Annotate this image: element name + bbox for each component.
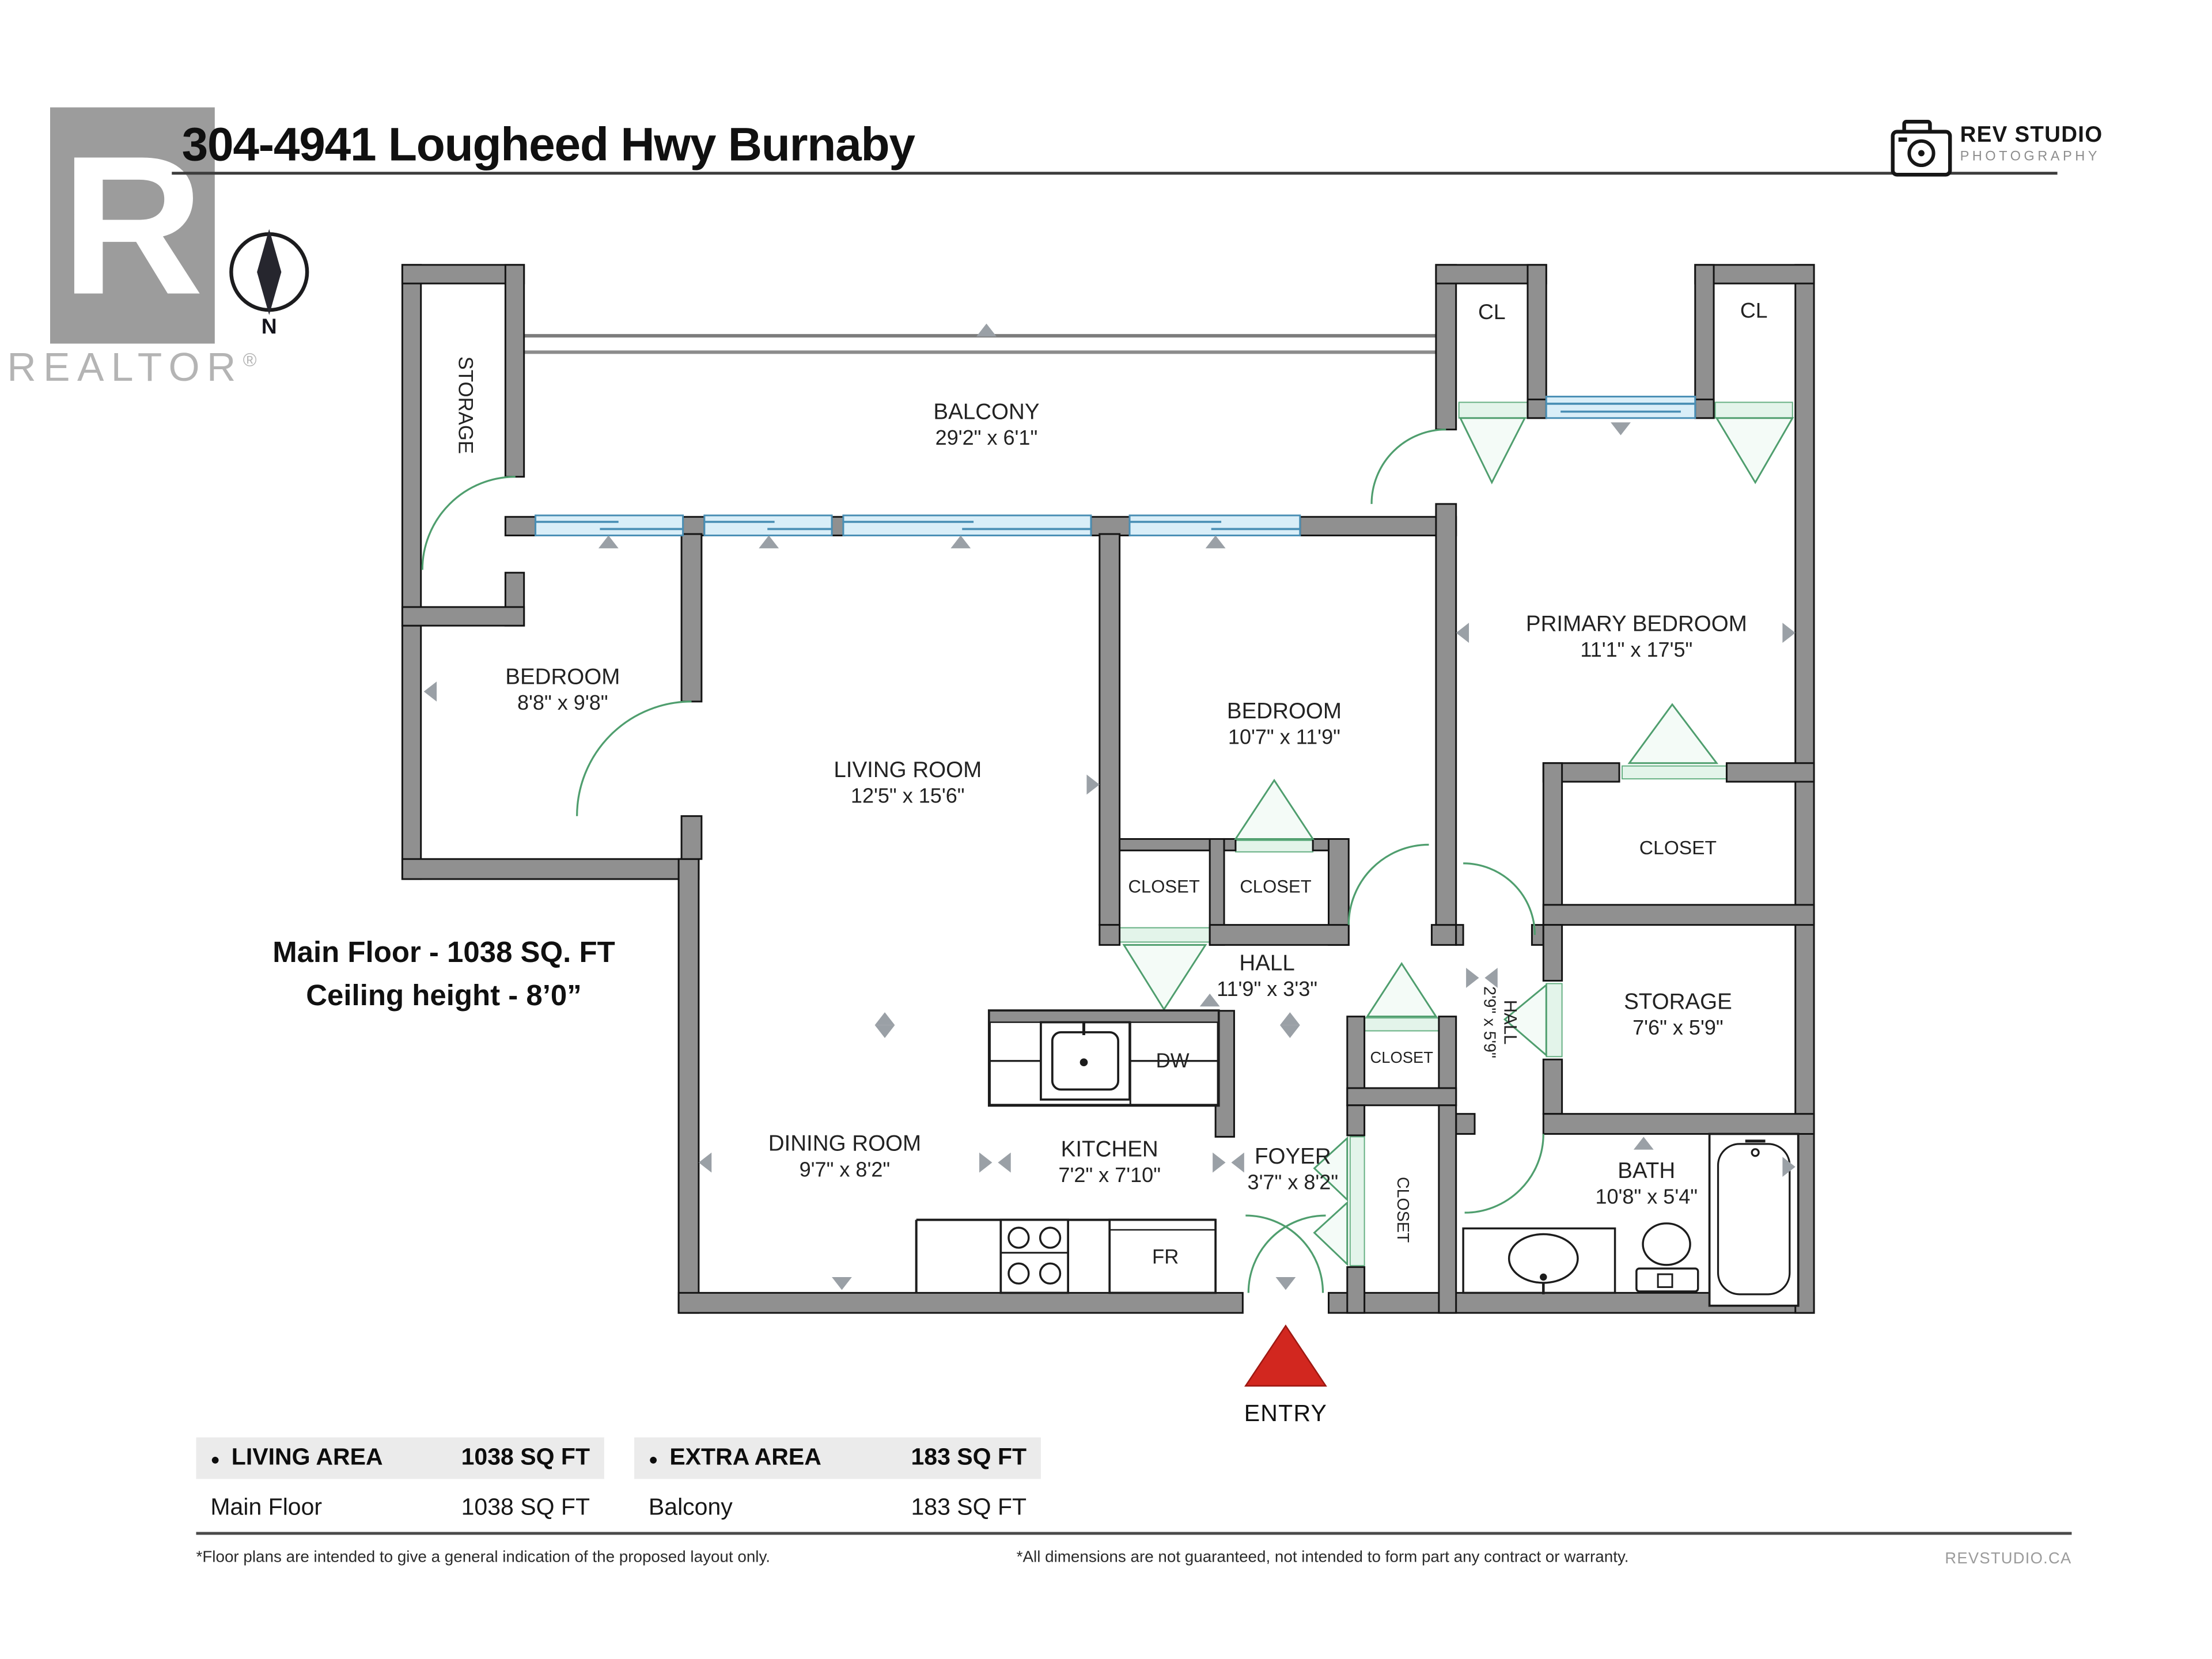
revstudio-watermark: REVSTUDIO.CA [1904, 1551, 2072, 1568]
bath-vanity [1463, 1229, 1615, 1294]
disclaimer-right: *All dimensions are not guaranteed, not … [1017, 1549, 1629, 1566]
main-floor-row: Main Floor 1038 SQ FT [196, 1489, 604, 1527]
living-area-total: 1038 SQ FT [461, 1445, 590, 1472]
floor-area-note: Main Floor - 1038 SQ. FT Ceiling height … [215, 932, 673, 1018]
floorplan-document: R REALTOR® 304-4941 Lougheed Hwy Burnaby… [0, 0, 2212, 1659]
room-label-closet-foyer-side: CLOSET [1392, 1177, 1412, 1243]
bullet-icon: ● [649, 1452, 658, 1469]
floorplan-page: R REALTOR® 304-4941 Lougheed Hwy Burnaby… [0, 0, 2212, 1659]
footer-divider [196, 1532, 2072, 1535]
balcony-label: Balcony [649, 1494, 733, 1521]
extra-area-title: EXTRA AREA [669, 1445, 821, 1471]
main-floor-value: 1038 SQ FT [461, 1494, 590, 1521]
balcony-row: Balcony 183 SQ FT [634, 1489, 1041, 1527]
floorplan-drawing [0, 0, 2212, 1659]
room-label-bath: BATH10'8" x 5'4" [1595, 1159, 1698, 1211]
room-label-closet-a: CLOSET [1128, 877, 1200, 899]
extra-area-header: ●EXTRA AREA 183 SQ FT [634, 1437, 1041, 1479]
ceiling-height-line: Ceiling height - 8’0” [215, 975, 673, 1018]
room-label-dw: DW [1156, 1048, 1190, 1073]
entry-label: ENTRY [1244, 1401, 1327, 1428]
room-label-bedroom-left: BEDROOM8'8" x 9'8" [505, 665, 620, 718]
room-label-storage-lower: STORAGE7'6" x 5'9" [1624, 990, 1732, 1043]
entry-arrow [1245, 1326, 1325, 1386]
room-label-cl-left: CL [1478, 301, 1506, 327]
room-label-primary-closet: CLOSET [1639, 837, 1717, 861]
room-label-bedroom-middle: BEDROOM10'7" x 11'9" [1227, 700, 1342, 752]
room-label-primary-bedroom: PRIMARY BEDROOM11'1" x 17'5" [1526, 612, 1747, 665]
bullet-icon: ● [210, 1452, 220, 1469]
room-label-fr: FR [1152, 1245, 1179, 1269]
living-area-header: ●LIVING AREA 1038 SQ FT [196, 1437, 604, 1479]
room-label-kitchen: KITCHEN7'2" x 7'10" [1058, 1138, 1161, 1190]
room-label-hall-side: HALL2'9" x 5'9" [1478, 986, 1520, 1058]
room-label-balcony: BALCONY29'2" x 6'1" [933, 400, 1039, 453]
extra-area-total: 183 SQ FT [911, 1445, 1027, 1472]
room-label-cl-right: CL [1740, 299, 1768, 325]
room-label-living-room: LIVING ROOM12'5" x 15'6" [834, 759, 982, 811]
kitchen-sink [1041, 1022, 1130, 1100]
room-label-foyer: FOYER3'7" x 8'2" [1248, 1145, 1339, 1198]
disclaimer-left: *Floor plans are intended to give a gene… [196, 1549, 771, 1566]
room-label-hall-main: HALL11'9" x 3'3" [1217, 952, 1317, 1004]
toilet [1637, 1224, 1698, 1291]
balcony-value: 183 SQ FT [911, 1494, 1027, 1521]
stove [1001, 1220, 1068, 1293]
living-area-title: LIVING AREA [232, 1445, 383, 1471]
room-label-dining-room: DINING ROOM9'7" x 8'2" [768, 1132, 921, 1184]
room-label-closet-b: CLOSET [1240, 877, 1311, 899]
room-label-storage-upper: STORAGE [453, 357, 478, 454]
room-label-closet-foyer-top: CLOSET [1370, 1050, 1433, 1069]
floor-area-line: Main Floor - 1038 SQ. FT [215, 932, 673, 975]
balcony-railing [524, 336, 1436, 353]
main-floor-label: Main Floor [210, 1494, 322, 1521]
